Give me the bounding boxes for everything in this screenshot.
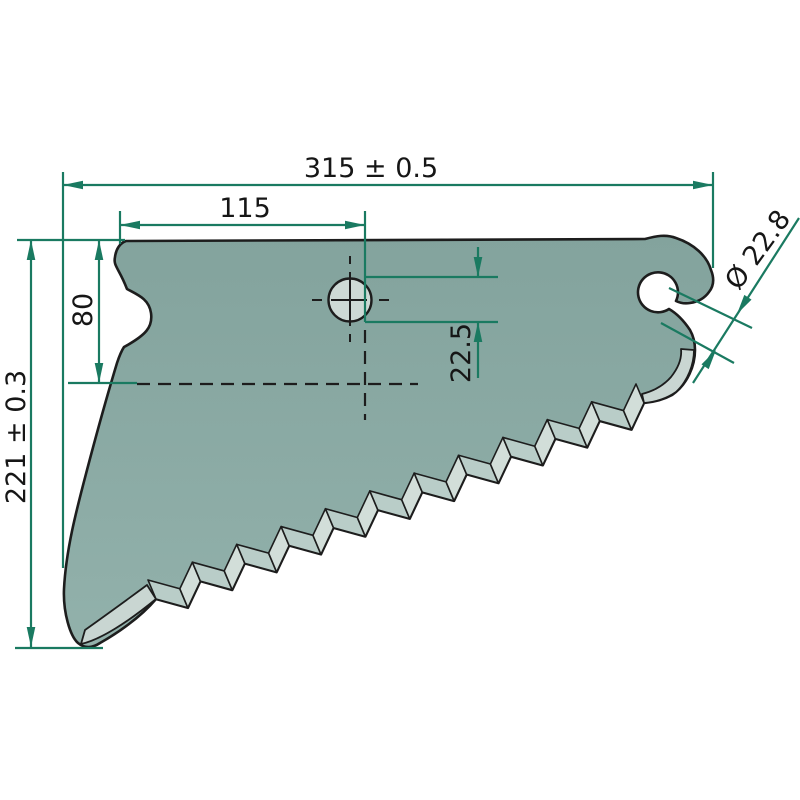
dim-label-total-height: 221 ± 0.3 [1, 370, 32, 504]
dimension-arrowhead [95, 363, 104, 383]
dim-label-hole-center-x: 115 [219, 193, 271, 224]
dim-label-hole-center-y: 80 [68, 293, 99, 327]
dimension-arrowhead [27, 627, 36, 647]
knife-technical-drawing: 315 ± 0.5 115 80 221 ± 0.3 22.5 Ø 22.8 [0, 0, 800, 800]
technical-drawing-page: 315 ± 0.5 115 80 221 ± 0.3 22.5 Ø 22.8 [0, 0, 800, 800]
dimension-arrowhead [95, 240, 104, 260]
dimension-arrowhead [693, 181, 713, 190]
dimension-arrowhead [345, 221, 365, 230]
blade [64, 236, 713, 647]
dim-label-hole-edge-offset: 22.5 [446, 323, 477, 383]
dim-label-total-width: 315 ± 0.5 [304, 153, 438, 184]
dimension-arrowhead [27, 240, 36, 260]
dimension-arrowhead [120, 221, 140, 230]
dimension-arrowhead [737, 295, 752, 314]
dimension-arrowhead [63, 181, 83, 190]
